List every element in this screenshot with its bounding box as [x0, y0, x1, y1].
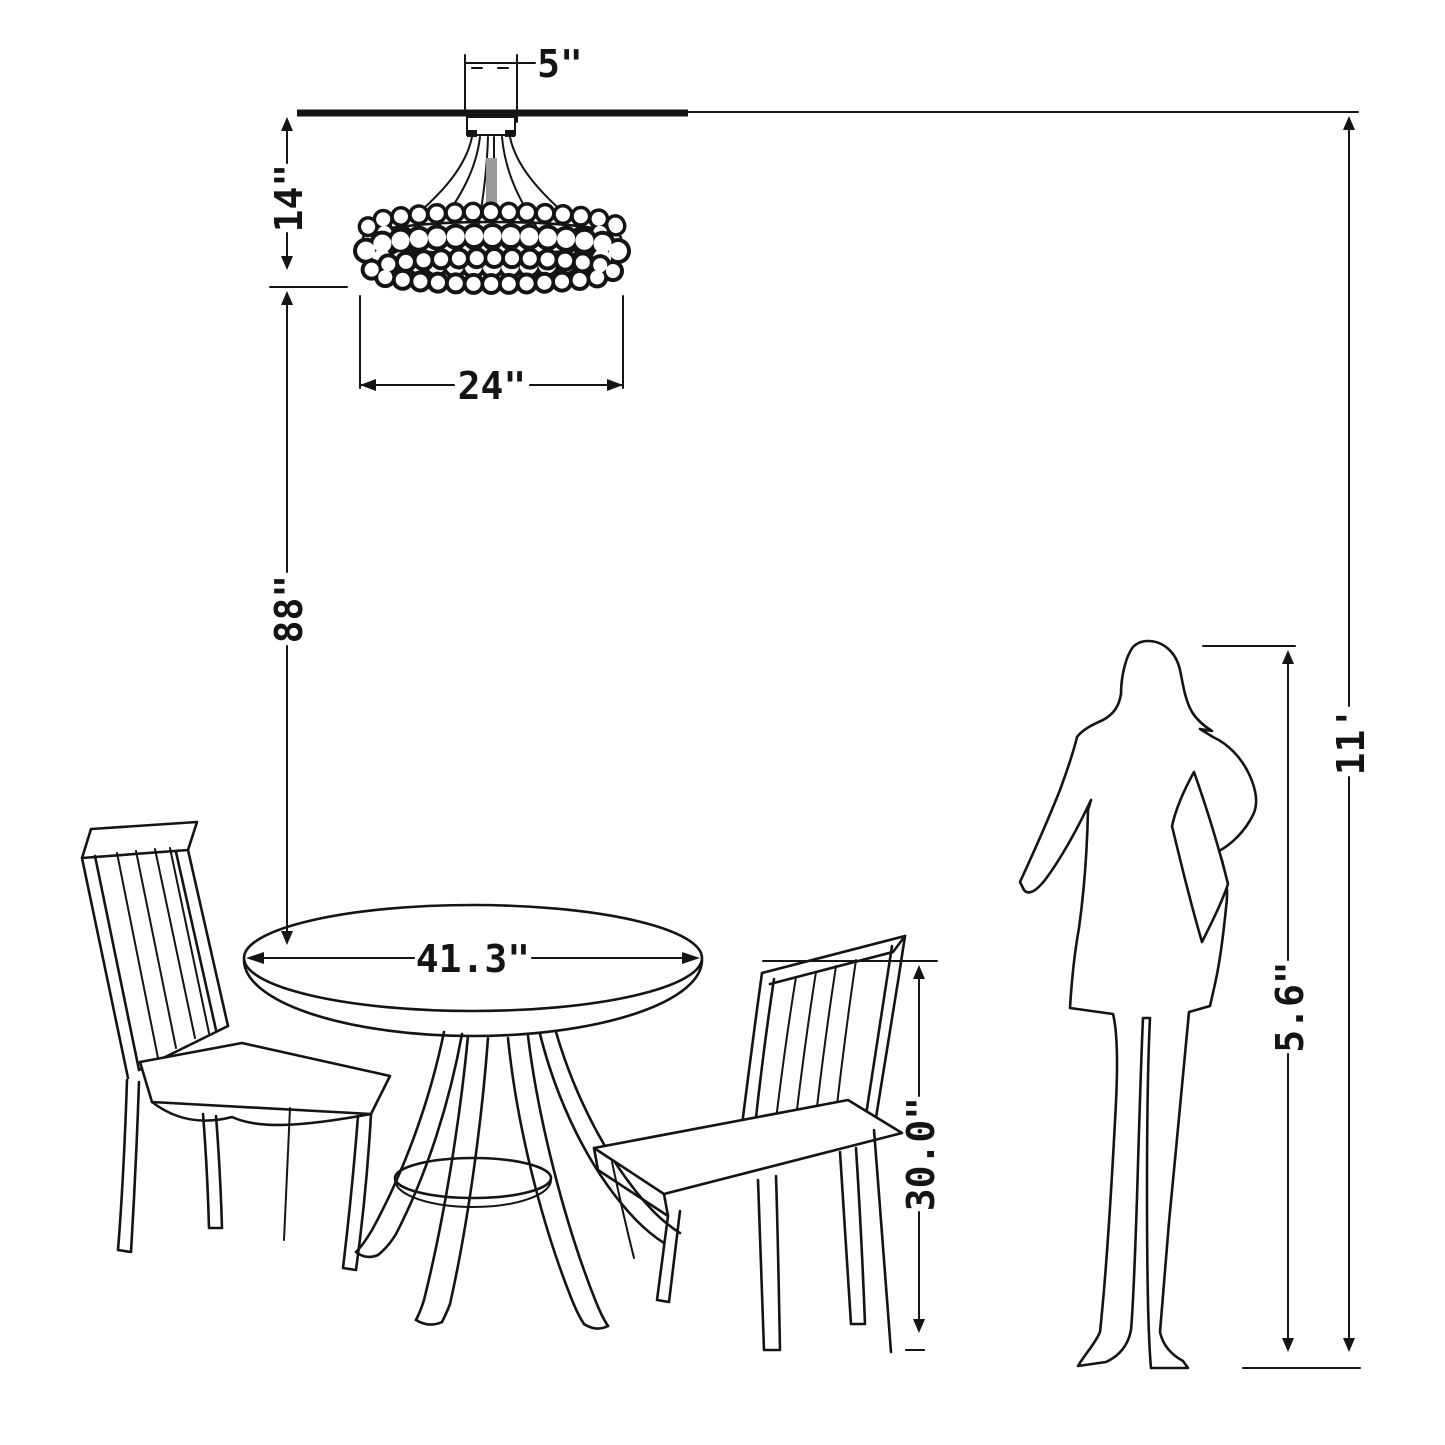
fixture-diameter-label: 24": [458, 364, 527, 408]
dim-canopy-width: 5": [537, 42, 583, 86]
chandelier-crystal-ring: [363, 212, 621, 284]
dimension-diagram: 5" 14" 24": [0, 0, 1445, 1445]
dimension-diagram-page: 5" 14" 24": [0, 0, 1445, 1445]
ceiling-height-label: 11': [1329, 707, 1373, 776]
chandelier-stem: [486, 158, 497, 206]
table-diameter-label: 41.3": [416, 937, 530, 981]
ceiling-line: [297, 112, 1358, 113]
canopy-width-label: 5": [537, 42, 583, 86]
person-height-label: 5.6": [1268, 961, 1312, 1053]
table-height-label: 30.0": [899, 1097, 943, 1211]
fixture-height-label: 14": [267, 164, 311, 233]
ceiling-to-table-label: 88": [267, 575, 311, 644]
